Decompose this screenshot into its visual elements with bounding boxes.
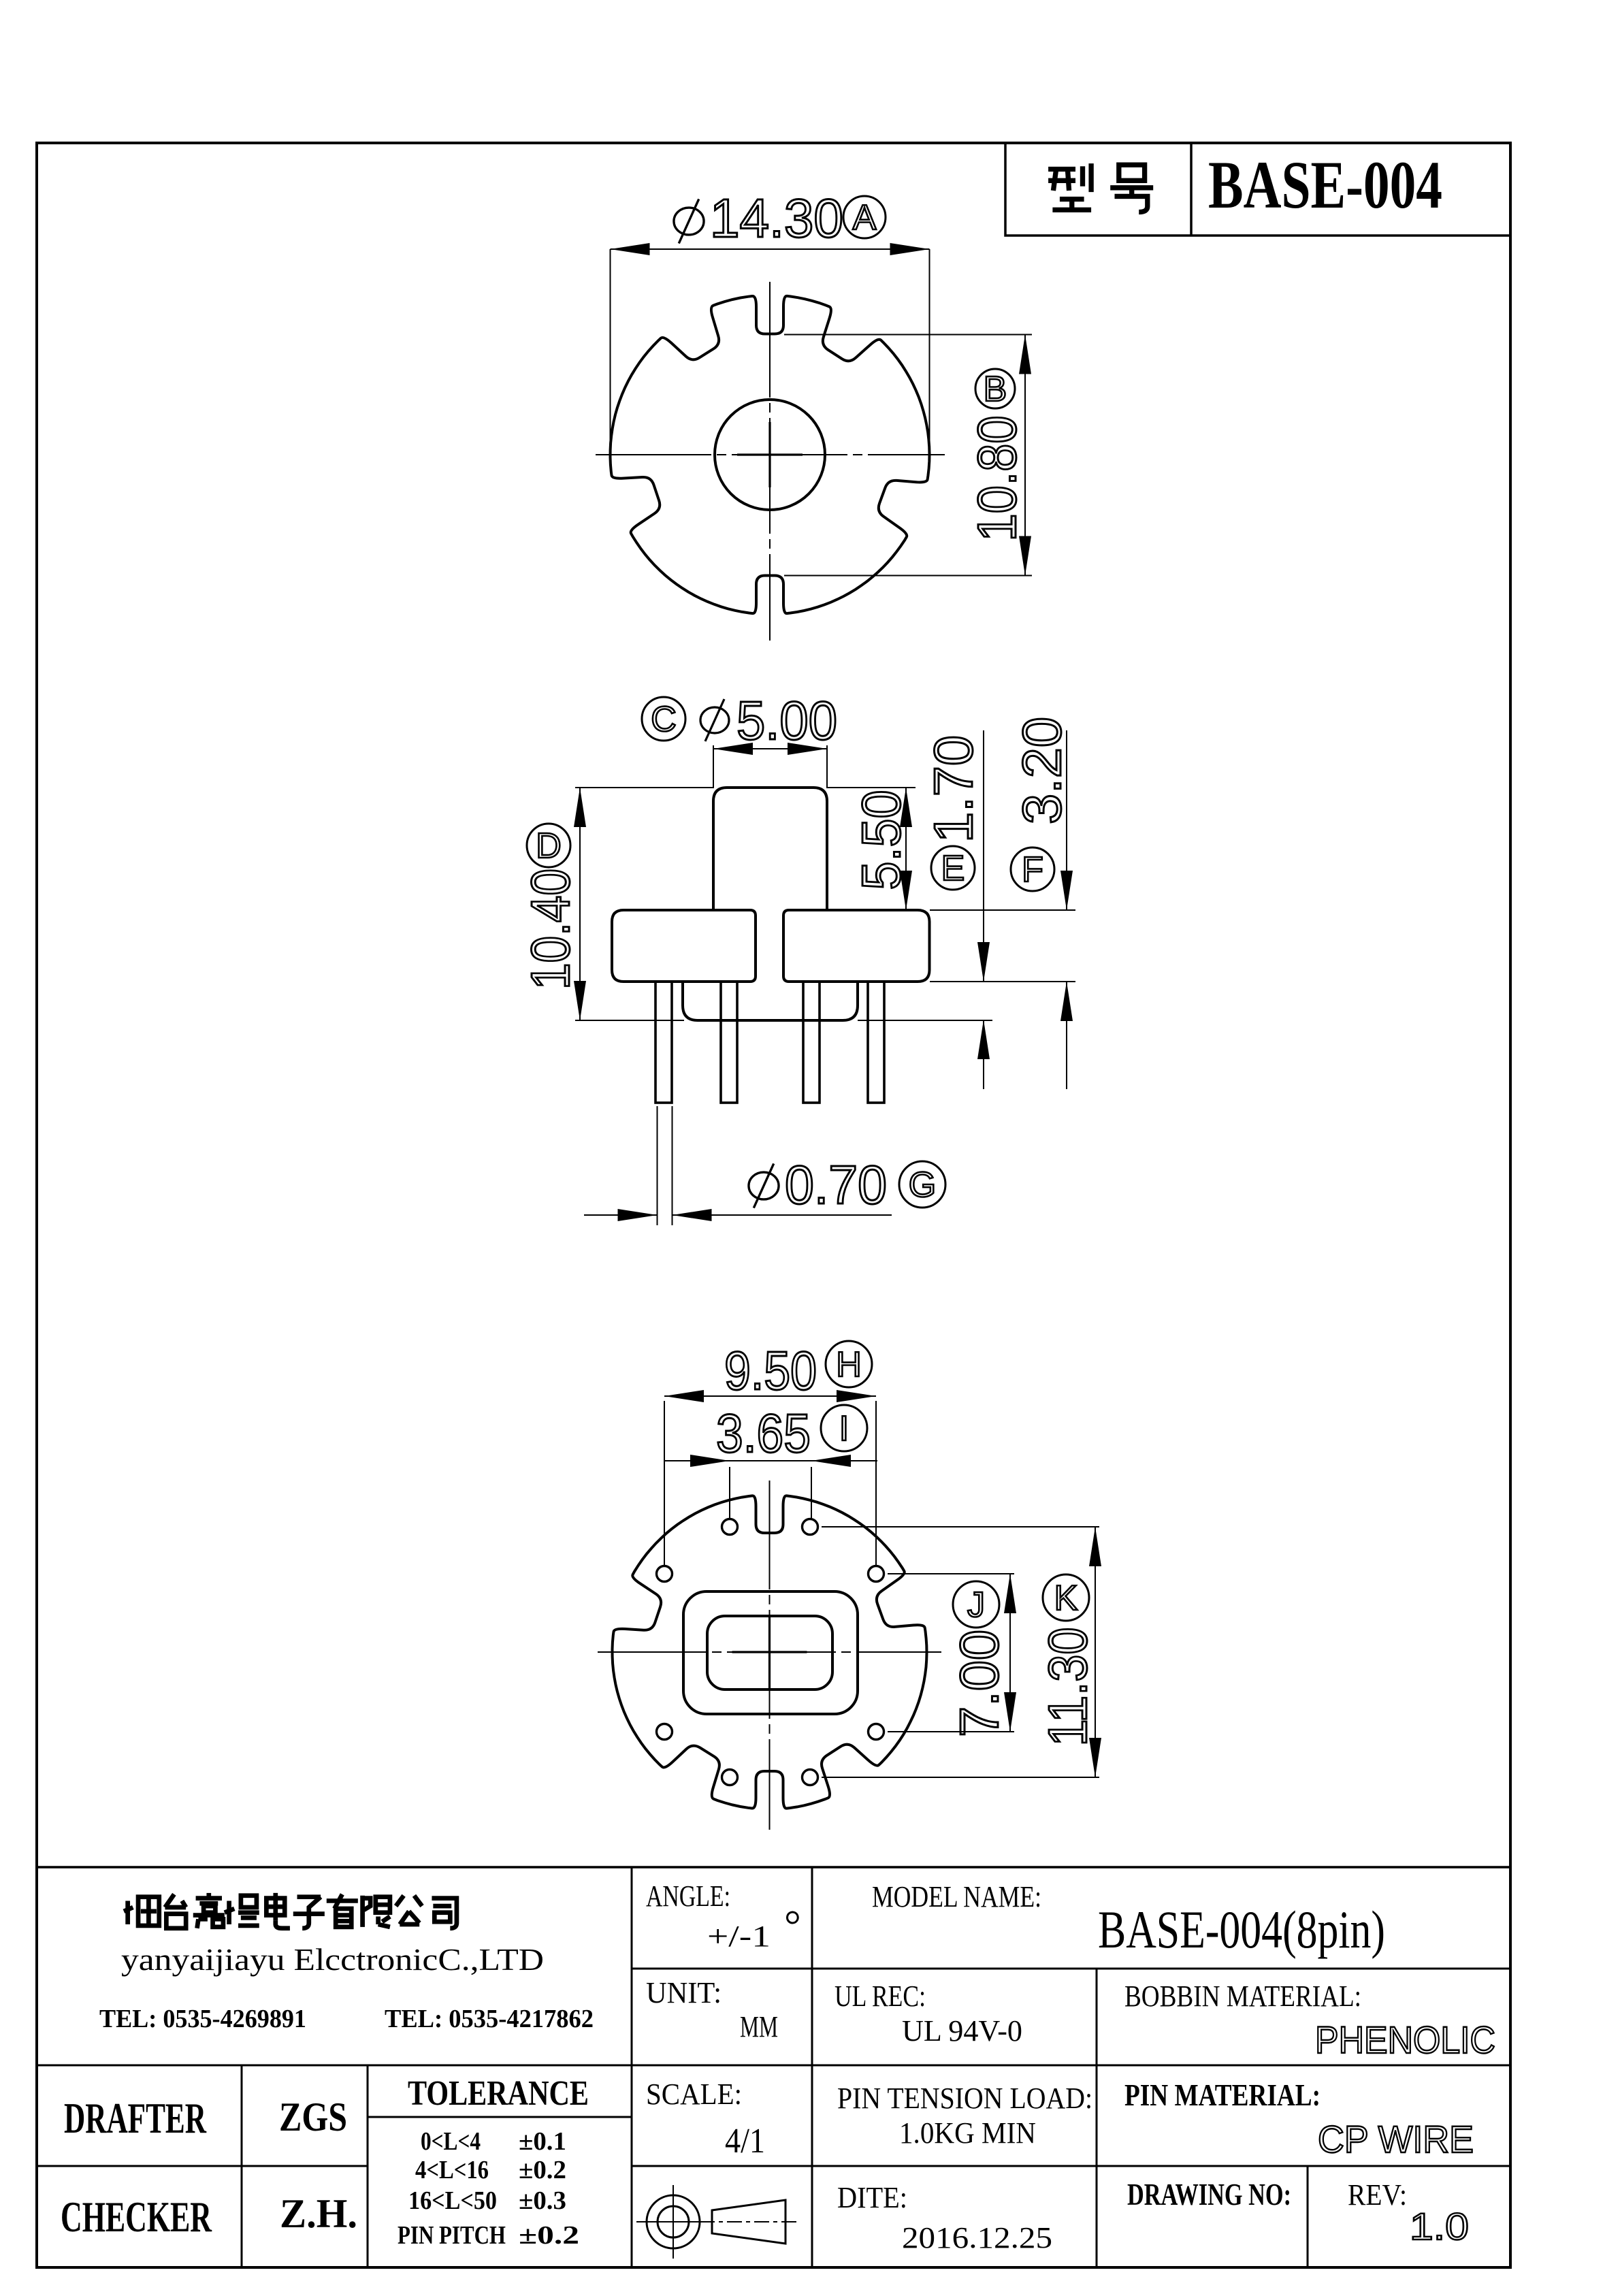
svg-text:9.50: 9.50 — [724, 1340, 817, 1401]
svg-text:0<L<4: 0<L<4 — [421, 2127, 481, 2156]
svg-text:5.50: 5.50 — [851, 790, 911, 890]
svg-text:Z.H.: Z.H. — [280, 2191, 357, 2236]
svg-text:4<L<16: 4<L<16 — [415, 2156, 489, 2184]
svg-text:MODEL NAME:: MODEL NAME: — [872, 1880, 1041, 1913]
svg-text:UL 94V-0: UL 94V-0 — [902, 2014, 1022, 2048]
svg-text:°: ° — [784, 1903, 801, 1949]
svg-text:TEL: 0535-4217862: TEL: 0535-4217862 — [385, 2005, 594, 2033]
svg-text:MM: MM — [740, 2010, 778, 2043]
svg-text:16<L<50: 16<L<50 — [408, 2186, 497, 2215]
svg-text:BASE-004(8pin): BASE-004(8pin) — [1098, 1900, 1385, 1959]
svg-text:0.70: 0.70 — [785, 1154, 887, 1215]
svg-text:H: H — [836, 1345, 862, 1385]
svg-text:PIN TENSION LOAD:: PIN TENSION LOAD: — [837, 2082, 1092, 2115]
svg-text:2016.12.25: 2016.12.25 — [902, 2221, 1052, 2254]
svg-text:PIN MATERIAL:: PIN MATERIAL: — [1124, 2077, 1321, 2112]
svg-text:UNIT:: UNIT: — [646, 1976, 722, 2009]
svg-text:ANGLE:: ANGLE: — [646, 1879, 730, 1913]
svg-text:PHENOLIC: PHENOLIC — [1315, 2018, 1495, 2061]
svg-text:REV:: REV: — [1348, 2178, 1407, 2212]
svg-text:I: I — [839, 1409, 849, 1449]
svg-text:1.0KG MIN: 1.0KG MIN — [899, 2116, 1036, 2150]
svg-text:F: F — [1022, 850, 1043, 890]
svg-text:SCALE:: SCALE: — [646, 2077, 742, 2111]
svg-text:E: E — [941, 849, 965, 888]
svg-text:±0.2: ±0.2 — [519, 2221, 579, 2250]
svg-text:TOLERANCE: TOLERANCE — [408, 2074, 589, 2113]
svg-text:11.30: 11.30 — [1037, 1628, 1098, 1747]
svg-text:CHECKER: CHECKER — [61, 2193, 212, 2241]
svg-text:±0.3: ±0.3 — [519, 2186, 566, 2215]
svg-text:C: C — [651, 700, 677, 739]
svg-text:14.30: 14.30 — [710, 188, 843, 248]
svg-text:10.80: 10.80 — [967, 416, 1027, 542]
svg-text:3.65: 3.65 — [716, 1403, 811, 1464]
svg-text:TEL: 0535-4269891: TEL: 0535-4269891 — [99, 2005, 306, 2033]
svg-text:BASE-004: BASE-004 — [1208, 147, 1442, 223]
svg-text:yanyaijiayu ElcctronicC.,LTD: yanyaijiayu ElcctronicC.,LTD — [121, 1942, 544, 1977]
svg-text:CP WIRE: CP WIRE — [1318, 2118, 1474, 2161]
svg-text:1.70: 1.70 — [923, 735, 984, 843]
svg-text:PIN PITCH: PIN PITCH — [398, 2221, 506, 2250]
svg-text:4/1: 4/1 — [725, 2122, 765, 2161]
svg-text:DRAFTER: DRAFTER — [64, 2094, 207, 2142]
svg-text:1.0: 1.0 — [1410, 2205, 1469, 2248]
svg-text:UL REC:: UL REC: — [835, 1979, 926, 2013]
svg-text:+/-1: +/-1 — [707, 1920, 771, 1953]
svg-text:10.40: 10.40 — [520, 869, 581, 990]
svg-text:±0.2: ±0.2 — [519, 2156, 566, 2184]
svg-text:G: G — [909, 1165, 936, 1205]
svg-text:J: J — [967, 1585, 985, 1625]
svg-text:A: A — [853, 198, 877, 238]
svg-text:K: K — [1054, 1579, 1078, 1618]
svg-text:DRAWING NO:: DRAWING NO: — [1127, 2177, 1291, 2212]
svg-text:BOBBIN MATERIAL:: BOBBIN MATERIAL: — [1124, 1979, 1361, 2013]
svg-text:3.20: 3.20 — [1011, 717, 1072, 824]
svg-text:ZGS: ZGS — [279, 2095, 347, 2139]
svg-text:B: B — [984, 370, 1007, 409]
svg-text:7.00: 7.00 — [949, 1630, 1009, 1737]
svg-text:D: D — [536, 826, 562, 866]
svg-text:±0.1: ±0.1 — [519, 2127, 566, 2156]
svg-text:DITE:: DITE: — [837, 2181, 907, 2214]
svg-text:5.00: 5.00 — [736, 690, 837, 751]
